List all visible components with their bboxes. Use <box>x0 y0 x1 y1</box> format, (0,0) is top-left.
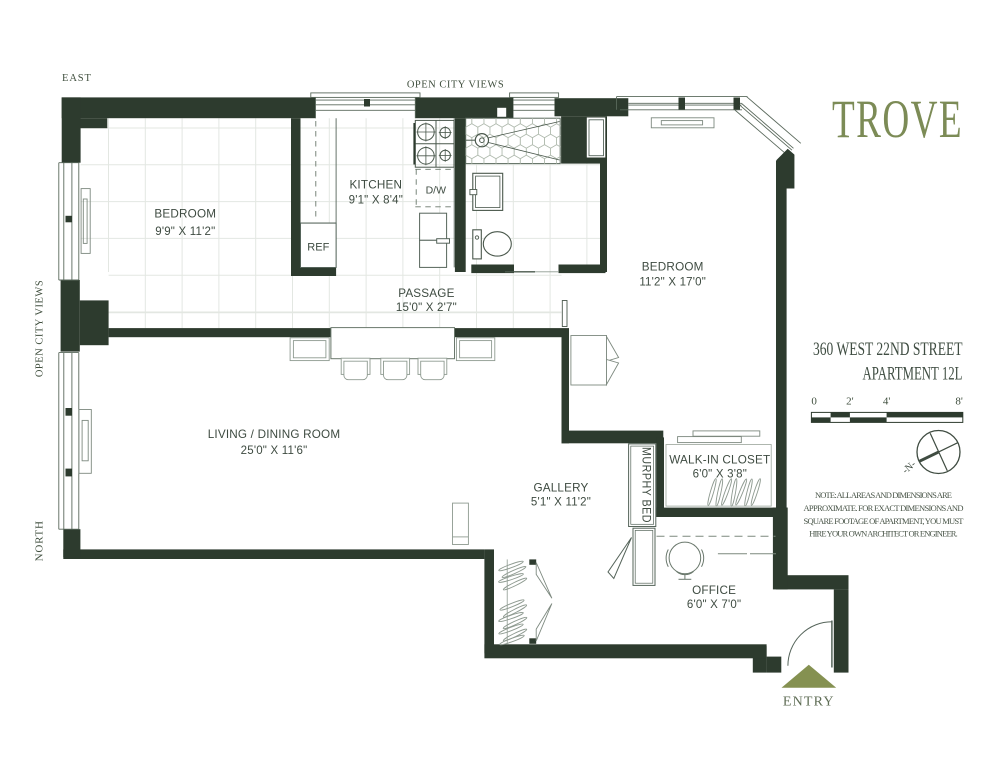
svg-text:4': 4' <box>883 396 891 408</box>
svg-text:SQUARE FOOTAGE OF APARTMENT, Y: SQUARE FOOTAGE OF APARTMENT, YOU MUST <box>804 516 965 526</box>
svg-text:2': 2' <box>846 396 854 408</box>
svg-text:APPROXIMATE. FOR EXACT DIMENSI: APPROXIMATE. FOR EXACT DIMENSIONS AND <box>804 503 964 513</box>
svg-text:MURPHY BED: MURPHY BED <box>639 447 651 523</box>
svg-text:25'0" X 11'6": 25'0" X 11'6" <box>241 445 308 457</box>
svg-text:PASSAGE: PASSAGE <box>398 287 454 300</box>
svg-text:0: 0 <box>811 396 817 408</box>
svg-text:EAST: EAST <box>62 73 92 84</box>
svg-text:5'1" X 11'2": 5'1" X 11'2" <box>531 497 591 509</box>
svg-text:REF: REF <box>307 242 329 254</box>
svg-text:LIVING / DINING ROOM: LIVING / DINING ROOM <box>208 428 341 441</box>
svg-text:TROVE: TROVE <box>832 89 963 149</box>
svg-text:KITCHEN: KITCHEN <box>349 179 402 192</box>
svg-text:9'9" X 11'2": 9'9" X 11'2" <box>155 226 215 238</box>
svg-text:6'0" X 7'0": 6'0" X 7'0" <box>687 599 741 611</box>
svg-text:11'2" X 17'0": 11'2" X 17'0" <box>639 277 706 289</box>
svg-text:WALK-IN CLOSET: WALK-IN CLOSET <box>669 454 770 467</box>
svg-text:15'0" X 2'7": 15'0" X 2'7" <box>396 302 457 314</box>
svg-text:9'1" X 8'4": 9'1" X 8'4" <box>349 195 403 207</box>
svg-text:NOTE: ALL AREAS AND DIMENSIONS: NOTE: ALL AREAS AND DIMENSIONS ARE <box>815 490 952 500</box>
svg-text:HIRE YOUR OWN ARCHITECT OR ENG: HIRE YOUR OWN ARCHITECT OR ENGINEER. <box>809 529 958 539</box>
svg-text:OPEN CITY VIEWS: OPEN CITY VIEWS <box>35 280 46 377</box>
svg-text:360 WEST 22ND STREET: 360 WEST 22ND STREET <box>813 339 963 360</box>
svg-text:OPEN CITY VIEWS: OPEN CITY VIEWS <box>407 79 504 90</box>
svg-text:BEDROOM: BEDROOM <box>642 261 704 274</box>
svg-text:OFFICE: OFFICE <box>692 584 736 597</box>
svg-text:8': 8' <box>955 396 963 408</box>
svg-text:BEDROOM: BEDROOM <box>154 208 216 221</box>
svg-text:D/W: D/W <box>426 185 447 197</box>
svg-text:NORTH: NORTH <box>34 520 46 561</box>
svg-text:ENTRY: ENTRY <box>783 695 835 710</box>
svg-text:6'0" X 3'8": 6'0" X 3'8" <box>693 469 747 481</box>
svg-text:GALLERY: GALLERY <box>533 482 588 495</box>
svg-text:APARTMENT 12L: APARTMENT 12L <box>863 364 963 385</box>
